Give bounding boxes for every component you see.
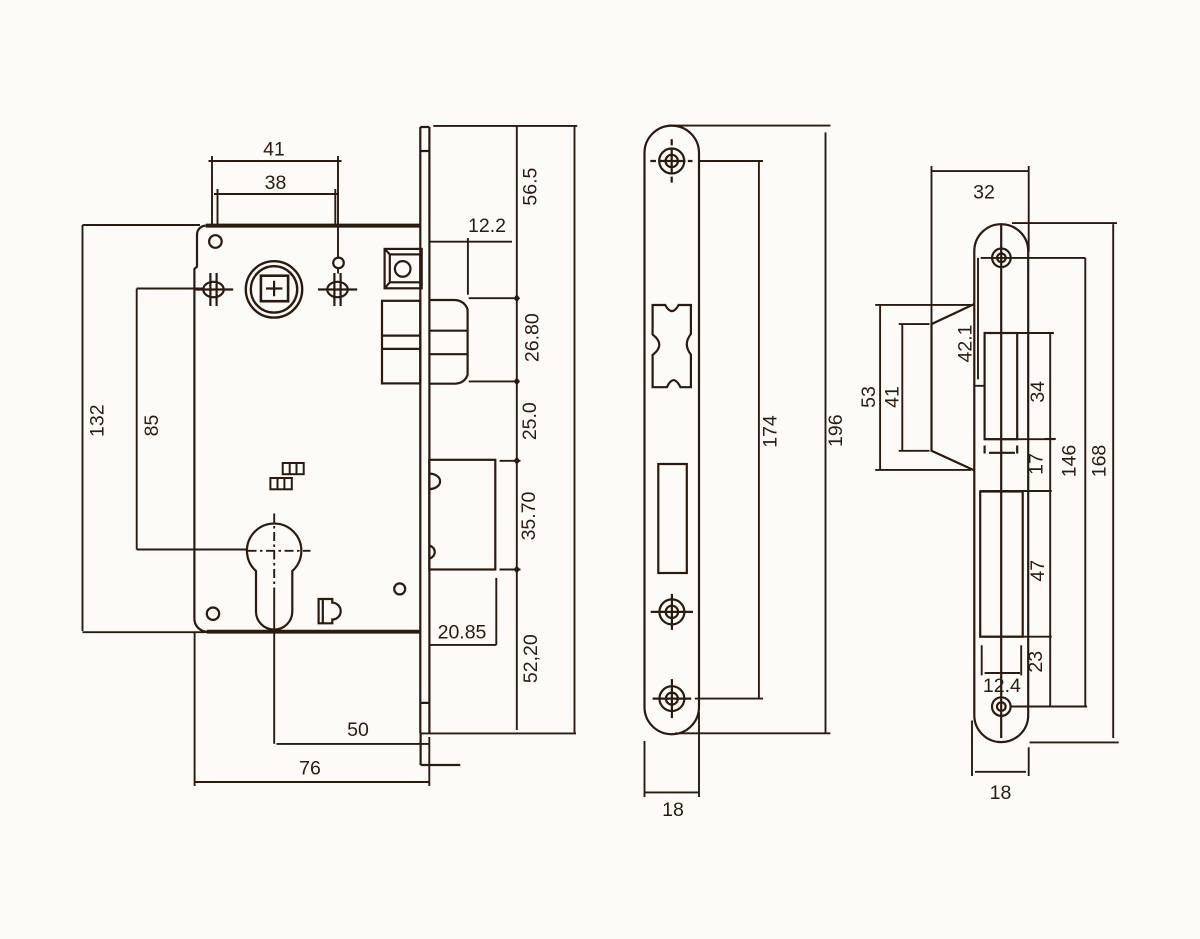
svg-text:41: 41 bbox=[881, 386, 903, 408]
svg-text:42.1: 42.1 bbox=[955, 325, 977, 363]
svg-text:132: 132 bbox=[86, 404, 108, 437]
svg-text:53: 53 bbox=[858, 386, 880, 408]
svg-text:56.5: 56.5 bbox=[520, 167, 542, 205]
svg-text:41: 41 bbox=[263, 139, 285, 161]
svg-text:12.4: 12.4 bbox=[983, 675, 1021, 697]
svg-text:38: 38 bbox=[265, 172, 287, 194]
svg-text:52,20: 52,20 bbox=[520, 634, 542, 683]
svg-text:20.85: 20.85 bbox=[438, 621, 487, 643]
svg-text:34: 34 bbox=[1027, 381, 1049, 403]
svg-text:12.2: 12.2 bbox=[468, 215, 506, 237]
svg-text:50: 50 bbox=[347, 719, 369, 741]
svg-text:47: 47 bbox=[1027, 560, 1049, 582]
svg-text:23: 23 bbox=[1025, 651, 1047, 673]
svg-text:168: 168 bbox=[1089, 445, 1111, 478]
svg-text:146: 146 bbox=[1059, 445, 1081, 478]
svg-text:196: 196 bbox=[825, 414, 847, 447]
svg-text:174: 174 bbox=[759, 415, 781, 448]
svg-text:85: 85 bbox=[141, 415, 163, 437]
svg-text:17: 17 bbox=[1025, 453, 1047, 475]
svg-text:18: 18 bbox=[990, 782, 1012, 804]
svg-text:26.80: 26.80 bbox=[522, 313, 544, 362]
svg-text:18: 18 bbox=[662, 799, 684, 821]
svg-text:76: 76 bbox=[299, 758, 321, 780]
svg-text:35.70: 35.70 bbox=[518, 491, 540, 540]
svg-text:25.0: 25.0 bbox=[519, 402, 541, 440]
svg-text:32: 32 bbox=[973, 182, 995, 204]
